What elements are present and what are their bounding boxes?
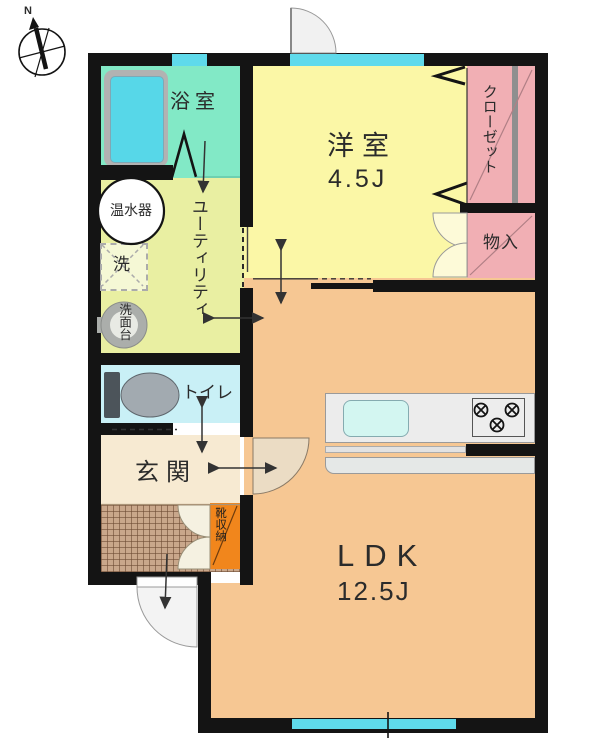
wall-toilet-south (88, 423, 173, 435)
wall-utility-south (88, 353, 253, 365)
western-room-window (290, 54, 424, 66)
western-room-floor-notch (244, 227, 253, 278)
wall-under-bathtub (88, 165, 173, 180)
bathroom-label: 浴室 (170, 92, 220, 113)
closet-hanger-pole (512, 66, 518, 203)
wall-kitchen-stub (466, 444, 535, 456)
toilet-label: トイレ (182, 384, 233, 402)
entrance-label: 玄関 (135, 460, 197, 485)
closet-floor (467, 66, 535, 203)
wall-closet-divider (460, 203, 535, 213)
ldk-label: LDK (337, 540, 427, 573)
wall-outer-left (88, 53, 101, 585)
kitchen-sink (343, 400, 409, 437)
compass-north-label: N (24, 6, 32, 18)
wall-outer-right (535, 53, 548, 733)
kitchen-stove (472, 398, 525, 437)
counter-edge-strip (325, 446, 466, 453)
ldk-floor (244, 278, 535, 718)
entrance-door (137, 577, 197, 647)
sliding-door-panel (311, 283, 373, 289)
closet-label: クローゼット (481, 84, 497, 199)
wall-mid-column-upper (240, 66, 253, 227)
counter-bar-table (325, 457, 535, 474)
washstand-label: 洗面台 (117, 303, 130, 349)
western-room-size: 4.5J (328, 166, 387, 192)
wall-entrance-south (88, 572, 211, 585)
bathroom-window (172, 54, 207, 66)
shoe-storage-label: 靴収納 (214, 507, 226, 567)
western-room-label: 洋室 (327, 132, 397, 160)
ldk-size: 12.5J (337, 578, 411, 605)
wall-ldk-west (198, 572, 211, 733)
compass-icon (19, 17, 65, 77)
bathtub-water (110, 76, 164, 163)
storage-label: 物入 (483, 234, 519, 252)
balcony-door (291, 8, 336, 53)
utility-label: ユーティリティ (189, 198, 207, 370)
wall-mid-column-lower (240, 495, 253, 585)
ldk-floor-lower-left (211, 583, 244, 718)
wall-storage-south (373, 280, 535, 292)
floor-plan: N 浴室 洋室 4.5J クローゼット 物入 温水器 洗 洗面台 ユーティリティ… (0, 0, 600, 747)
washer-label: 洗 (113, 256, 130, 274)
ldk-window (292, 719, 456, 729)
water-heater-label: 温水器 (98, 203, 164, 218)
